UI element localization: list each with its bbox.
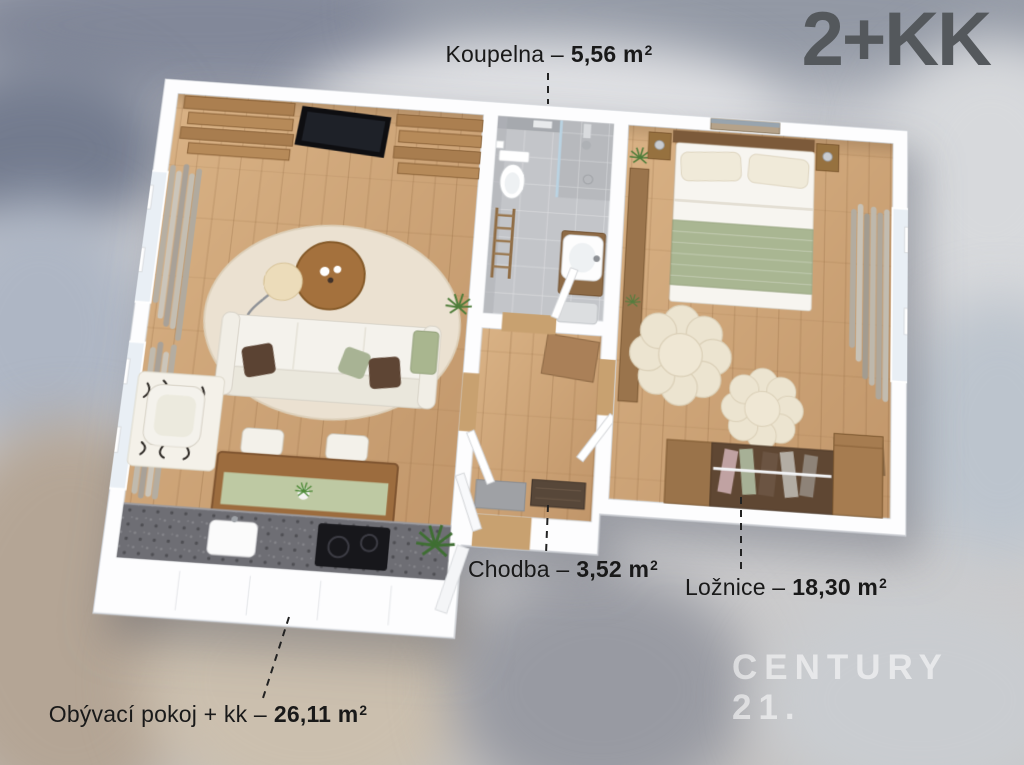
room-name: Koupelna – bbox=[445, 41, 563, 67]
kitchen-sink bbox=[206, 520, 258, 558]
room-area: 3,52 m bbox=[576, 556, 649, 582]
room-bathroom bbox=[483, 116, 614, 325]
room-bedroom bbox=[609, 113, 909, 521]
room-area: 5,56 m bbox=[571, 41, 644, 67]
floorplan-screenshot: Koupelna –5,56 m2 Chodba –3,52 m2 Ložnic… bbox=[0, 0, 1024, 765]
label-obyvaci: Obývací pokoj + kk –26,11 m2 bbox=[49, 701, 368, 728]
room-area: 18,30 m bbox=[792, 574, 878, 600]
room-name: Obývací pokoj + kk – bbox=[49, 701, 267, 727]
sofa bbox=[213, 312, 441, 410]
label-loznice: Ložnice –18,30 m2 bbox=[685, 574, 887, 601]
dining-chair bbox=[240, 427, 284, 456]
flush-panel bbox=[533, 120, 552, 128]
pillow-brown bbox=[241, 342, 276, 378]
cooktop bbox=[314, 523, 390, 571]
room-area: 26,11 m bbox=[274, 701, 359, 727]
century21-watermark: CENTURY 21. bbox=[732, 648, 1024, 728]
room-name: Ložnice – bbox=[685, 574, 785, 600]
throw-blanket bbox=[410, 331, 439, 375]
shower-column bbox=[583, 124, 591, 139]
entrance-door-opening bbox=[472, 514, 532, 550]
background-blob bbox=[900, 300, 1024, 560]
toilet-paper-holder bbox=[496, 141, 504, 149]
armchair-cushion bbox=[153, 394, 198, 438]
hall-mat-wood bbox=[541, 334, 599, 383]
bathroom-door-opening bbox=[501, 312, 556, 335]
shoe-rack bbox=[531, 479, 586, 509]
doormat bbox=[474, 480, 526, 511]
room-name: Chodba – bbox=[468, 556, 569, 582]
layout-type-title: 2+KK bbox=[802, 2, 990, 78]
bedside-lamp bbox=[823, 152, 833, 162]
pillow bbox=[681, 152, 742, 181]
wardrobe-side bbox=[833, 433, 883, 518]
label-koupelna: Koupelna –5,56 m2 bbox=[445, 41, 652, 68]
pillow-brown bbox=[368, 356, 401, 389]
bedside-lamp bbox=[655, 140, 665, 150]
label-chodba: Chodba –3,52 m2 bbox=[468, 556, 658, 583]
dining-chair bbox=[325, 433, 369, 462]
